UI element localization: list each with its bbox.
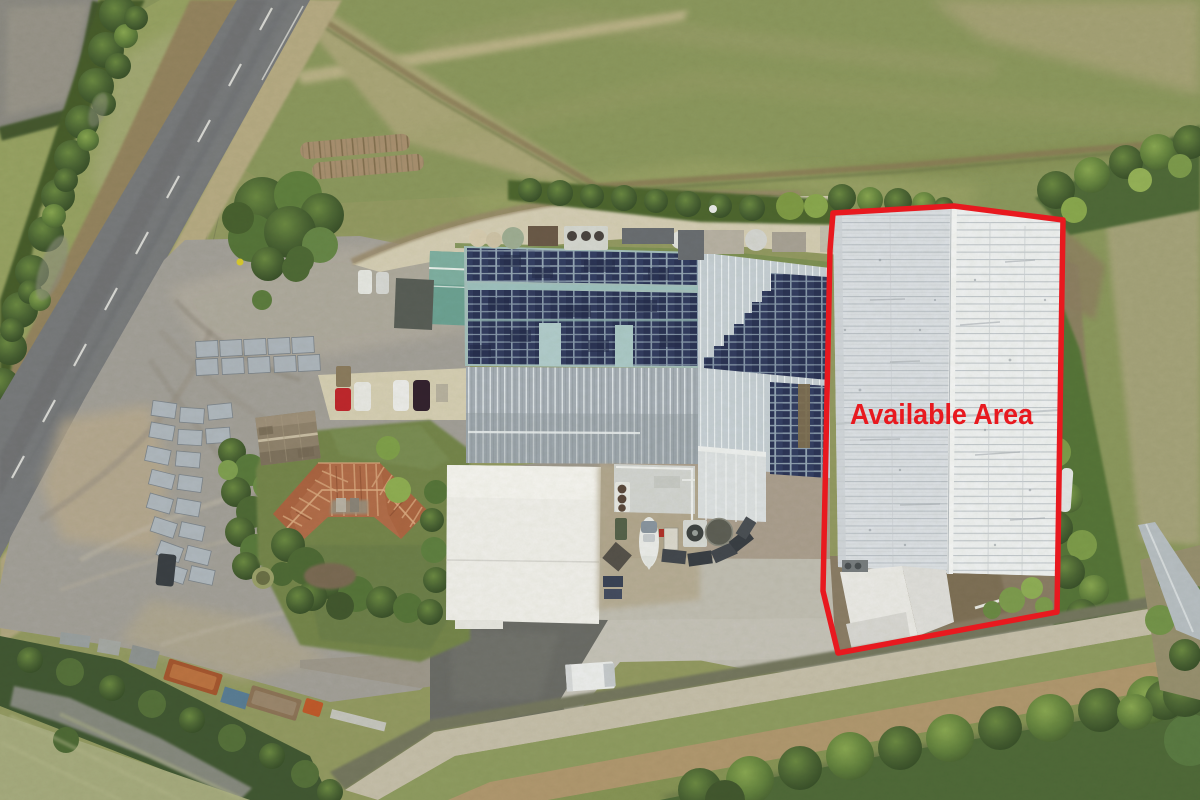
svg-text:Available Area: Available Area [850,399,1034,431]
